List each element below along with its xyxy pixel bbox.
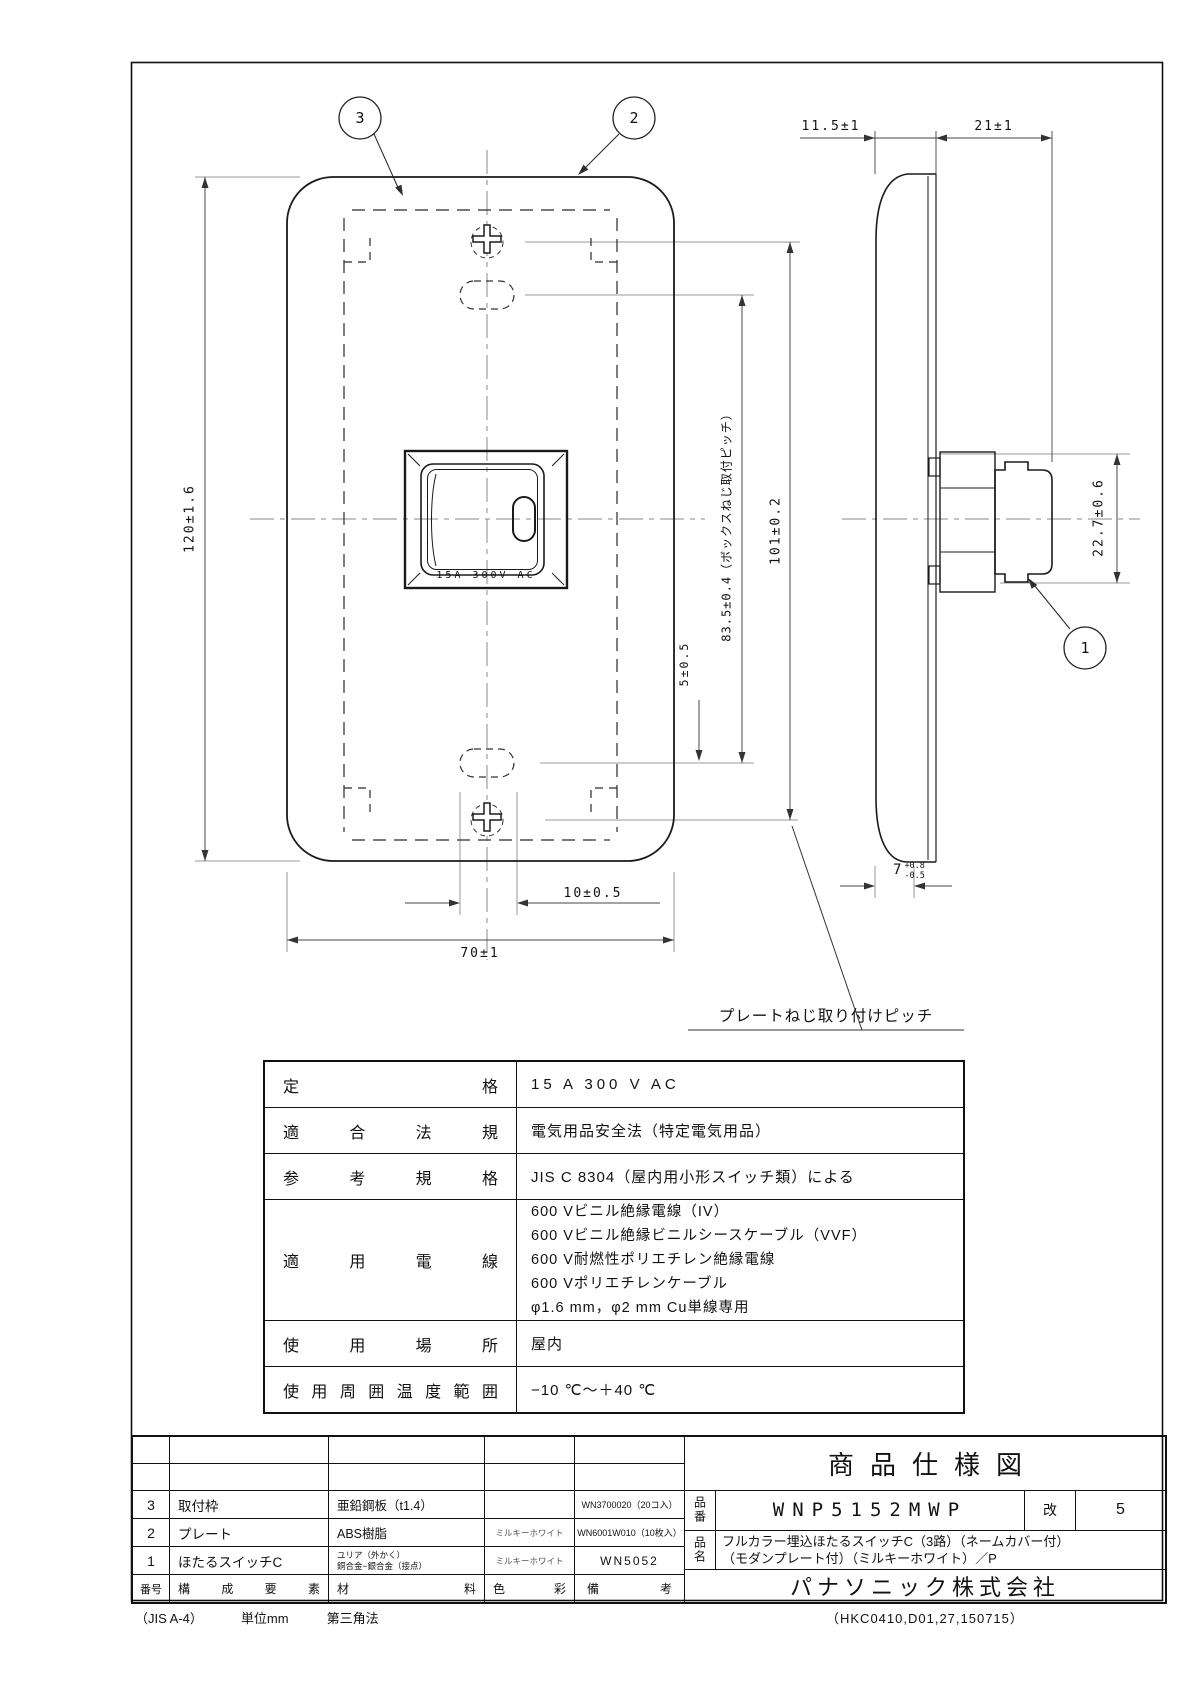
part-note: WN5052 bbox=[575, 1547, 684, 1574]
revision-value: 5 bbox=[1076, 1491, 1165, 1531]
part-material: 亜鉛鋼板（t1.4） bbox=[329, 1491, 485, 1518]
company-name: パナソニック株式会社 bbox=[685, 1570, 1165, 1602]
balloon-2-number: 2 bbox=[625, 109, 643, 127]
side-switch-body bbox=[995, 462, 1052, 582]
spec-row-law: 適合法規 電気用品安全法（特定電気用品） bbox=[265, 1107, 963, 1153]
spec-row-temperature: 使用周囲温度範囲 −10 ℃〜＋40 ℃ bbox=[265, 1366, 963, 1412]
parts-row-3: 3 取付枠 亜鉛鋼板（t1.4） WN3700020（20コ入） bbox=[133, 1490, 684, 1518]
parts-header-color: 色彩 bbox=[485, 1575, 575, 1602]
parts-row-1: 1 ほたるスイッチC ユリア（外かく） 銅合金−銀合金（接点） ミルキーホワイト… bbox=[133, 1546, 684, 1574]
plate-screw-pitch-note: プレートねじ取り付けピッチ bbox=[688, 1004, 964, 1026]
footer-projection: 第三角法 bbox=[327, 1608, 379, 1627]
drawing-canvas bbox=[0, 0, 1190, 1684]
spec-value-wires: 600 Vビニル絶縁電線（IV） 600 Vビニル絶縁ビニルシースケーブル（VV… bbox=[517, 1200, 963, 1320]
parts-list: 3 取付枠 亜鉛鋼板（t1.4） WN3700020（20コ入） 2 プレート … bbox=[133, 1437, 685, 1602]
parts-row-2: 2 プレート ABS樹脂 ミルキーホワイト WN6001W010（10枚入） bbox=[133, 1518, 684, 1546]
part-note: WN3700020（20コ入） bbox=[575, 1491, 684, 1518]
footer-left: （JIS A-4） 単位mm 第三角法 bbox=[135, 1608, 379, 1627]
spec-row-standard: 参考規格 JIS C 8304（屋内用小形スイッチ類）による bbox=[265, 1153, 963, 1199]
parts-header-no: 番号 bbox=[133, 1575, 170, 1602]
footer-unit: 単位mm bbox=[241, 1608, 289, 1627]
plate-screw-bottom-icon bbox=[471, 803, 503, 836]
dim-protrusion-minus: -0.5 bbox=[904, 872, 924, 882]
centerlines bbox=[250, 150, 1140, 960]
balloon-3-number: 3 bbox=[351, 109, 369, 127]
dim-plate-screw-pitch: 101±0.2 bbox=[769, 486, 784, 576]
parts-header-name: 構成要素 bbox=[170, 1575, 329, 1602]
product-name-value: フルカラー埋込ほたるスイッチC（3路）（ネームカバー付） （モダンプレート付）（… bbox=[716, 1531, 1165, 1569]
part-material: ABS樹脂 bbox=[329, 1519, 485, 1546]
dim-slot-offset: 5±0.5 bbox=[677, 634, 691, 694]
part-no: 2 bbox=[133, 1519, 170, 1546]
title-block: 商品仕様図 品番 WNP5152MWP 改 5 品名 フルカラー埋込ほたるスイッ… bbox=[685, 1437, 1165, 1602]
dim-slot-width: 10±0.5 bbox=[528, 886, 658, 901]
mounting-frame-dashed bbox=[344, 210, 617, 840]
spec-label-standard: 参考規格 bbox=[265, 1154, 517, 1199]
dim-box-screw-pitch: 83.5±0.4（ボックスねじ取付ピッチ） bbox=[718, 360, 735, 690]
spec-label-rating: 定格 bbox=[265, 1062, 517, 1107]
dimension-arrows bbox=[202, 135, 1121, 944]
parts-row-empty-2 bbox=[133, 1463, 684, 1490]
part-no: 3 bbox=[133, 1491, 170, 1518]
part-name: プレート bbox=[170, 1519, 329, 1546]
side-plate-profile bbox=[876, 174, 936, 862]
plate-screw-top-icon bbox=[471, 225, 503, 258]
dim-box-depth: 21±1 bbox=[956, 119, 1032, 134]
spec-value-standard: JIS C 8304（屋内用小形スイッチ類）による bbox=[517, 1154, 963, 1199]
spec-value-temperature: −10 ℃〜＋40 ℃ bbox=[517, 1367, 963, 1412]
part-name: ほたるスイッチC bbox=[170, 1547, 329, 1574]
part-color bbox=[485, 1491, 575, 1518]
side-mounting-frame bbox=[940, 452, 995, 592]
dim-body-height: 22.7±0.6 bbox=[1092, 463, 1107, 573]
spec-value-rating: 15 A 300 V AC bbox=[517, 1062, 963, 1107]
parts-header-note: 備考 bbox=[575, 1575, 684, 1602]
product-name-row: 品名 フルカラー埋込ほたるスイッチC（3路）（ネームカバー付） （モダンプレート… bbox=[685, 1531, 1165, 1570]
note-leader bbox=[688, 826, 964, 1030]
spec-value-law: 電気用品安全法（特定電気用品） bbox=[517, 1108, 963, 1153]
part-color: ミルキーホワイト bbox=[485, 1519, 575, 1546]
spec-label-law: 適合法規 bbox=[265, 1108, 517, 1153]
footer-doc-number: （HKC0410,D01,27,150715） bbox=[826, 1608, 1024, 1627]
dim-plate-height: 120±1.6 bbox=[183, 459, 198, 579]
parts-row-empty-1 bbox=[133, 1437, 684, 1463]
dim-plate-thickness: 11.5±1 bbox=[786, 119, 876, 134]
spec-row-wires: 適用電線 600 Vビニル絶縁電線（IV） 600 Vビニル絶縁ビニルシースケー… bbox=[265, 1199, 963, 1320]
parts-header-material: 材料 bbox=[329, 1575, 485, 1602]
drawing-title: 商品仕様図 bbox=[685, 1437, 1165, 1491]
parts-header-row: 番号 構成要素 材料 色彩 備考 bbox=[133, 1574, 684, 1602]
product-name-label: 品名 bbox=[685, 1531, 716, 1569]
title-block-table: 3 取付枠 亜鉛鋼板（t1.4） WN3700020（20コ入） 2 プレート … bbox=[131, 1435, 1167, 1604]
switch-rating-label: 15A 300V AC bbox=[406, 570, 566, 581]
dim-plate-width: 70±1 bbox=[420, 946, 540, 961]
dim-protrusion: 7 bbox=[893, 862, 901, 878]
balloon-1-number: 1 bbox=[1076, 639, 1094, 657]
spec-label-location: 使用場所 bbox=[265, 1321, 517, 1366]
part-number-row: 品番 WNP5152MWP 改 5 bbox=[685, 1491, 1165, 1532]
spec-label-temperature: 使用周囲温度範囲 bbox=[265, 1367, 517, 1412]
part-color: ミルキーホワイト bbox=[485, 1547, 575, 1574]
part-note: WN6001W010（10枚入） bbox=[575, 1519, 684, 1546]
spec-row-rating: 定格 15 A 300 V AC bbox=[265, 1062, 963, 1107]
side-extension-lines bbox=[875, 131, 1052, 462]
part-no: 1 bbox=[133, 1547, 170, 1574]
part-number-value: WNP5152MWP bbox=[716, 1491, 1024, 1531]
spec-row-location: 使用場所 屋内 bbox=[265, 1320, 963, 1366]
side-view bbox=[876, 174, 1052, 862]
footer-sheet-size: （JIS A-4） bbox=[135, 1608, 203, 1627]
extension-lines bbox=[195, 177, 1130, 952]
part-name: 取付枠 bbox=[170, 1491, 329, 1518]
spec-value-location: 屋内 bbox=[517, 1321, 963, 1366]
switch-rocker bbox=[421, 464, 544, 575]
spec-table: 定格 15 A 300 V AC 適合法規 電気用品安全法（特定電気用品） 参考… bbox=[263, 1060, 965, 1414]
part-material: ユリア（外かく） 銅合金−銀合金（接点） bbox=[329, 1547, 485, 1574]
part-number-label: 品番 bbox=[685, 1491, 716, 1531]
dim-protrusion-group: 7 +0.8 -0.5 bbox=[893, 862, 925, 882]
spec-drawing-page: { "drawing": { "balloons": {"plate_frame… bbox=[0, 0, 1190, 1684]
spec-label-wires: 適用電線 bbox=[265, 1200, 517, 1320]
revision-label: 改 bbox=[1024, 1491, 1076, 1531]
